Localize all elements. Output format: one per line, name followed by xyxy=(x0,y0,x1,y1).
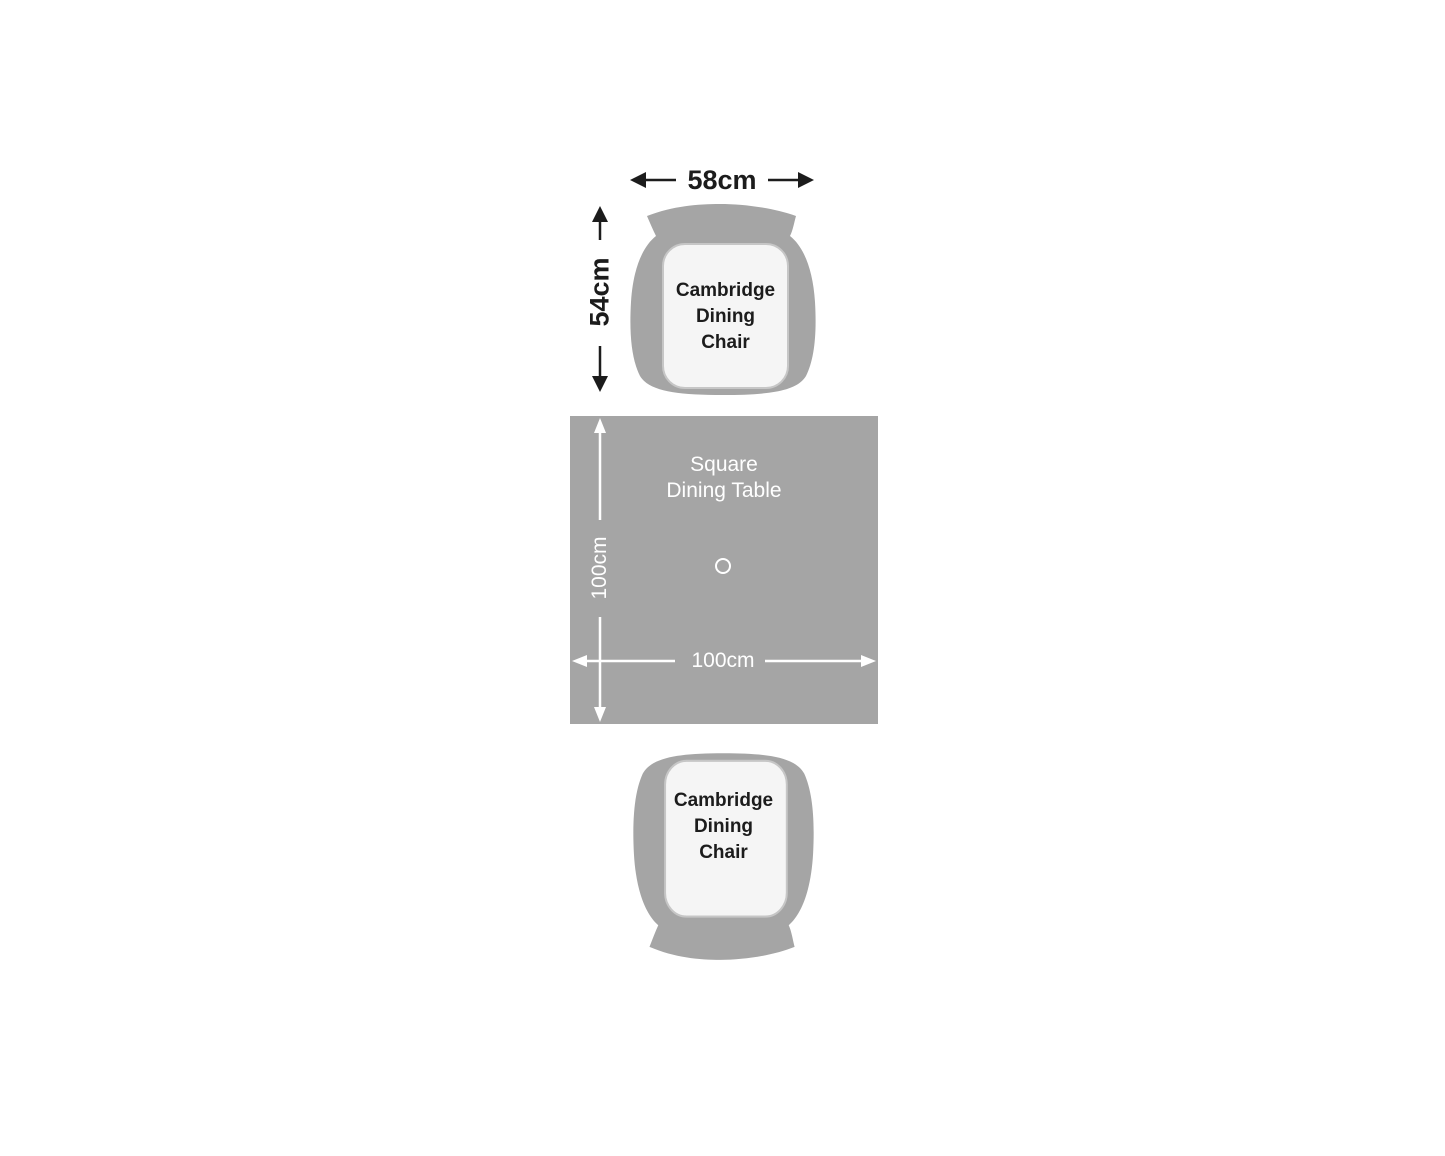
table-name-line2: Dining Table xyxy=(570,478,878,504)
dining-set-dimension-diagram: 58cm 54cm Cambridge Dining Chair Square … xyxy=(0,0,1445,1156)
chair-bottom: Cambridge Dining Chair xyxy=(631,750,816,962)
table-depth-label: 100cm xyxy=(588,536,612,599)
chair-top-name-line3: Chair xyxy=(663,330,788,356)
chair-width-dimension: 58cm xyxy=(628,166,816,194)
dining-table: Square Dining Table 100cm 100cm xyxy=(570,416,878,724)
table-width-label: 100cm xyxy=(691,649,754,673)
chair-depth-label: 54cm xyxy=(585,257,616,326)
table-name-line1: Square xyxy=(570,452,878,478)
chair-top: Cambridge Dining Chair xyxy=(628,202,818,398)
chair-bottom-name-line1: Cambridge xyxy=(661,788,786,814)
chair-top-name: Cambridge Dining Chair xyxy=(663,278,788,356)
table-name: Square Dining Table xyxy=(570,452,878,504)
chair-bottom-name: Cambridge Dining Chair xyxy=(661,788,786,866)
chair-bottom-name-line3: Chair xyxy=(661,840,786,866)
chair-depth-dimension: 54cm xyxy=(585,204,615,394)
chair-width-label: 58cm xyxy=(687,165,756,196)
chair-bottom-name-line2: Dining xyxy=(661,814,786,840)
chair-top-name-line1: Cambridge xyxy=(663,278,788,304)
table-center-circle-icon xyxy=(715,558,731,574)
chair-top-name-line2: Dining xyxy=(663,304,788,330)
